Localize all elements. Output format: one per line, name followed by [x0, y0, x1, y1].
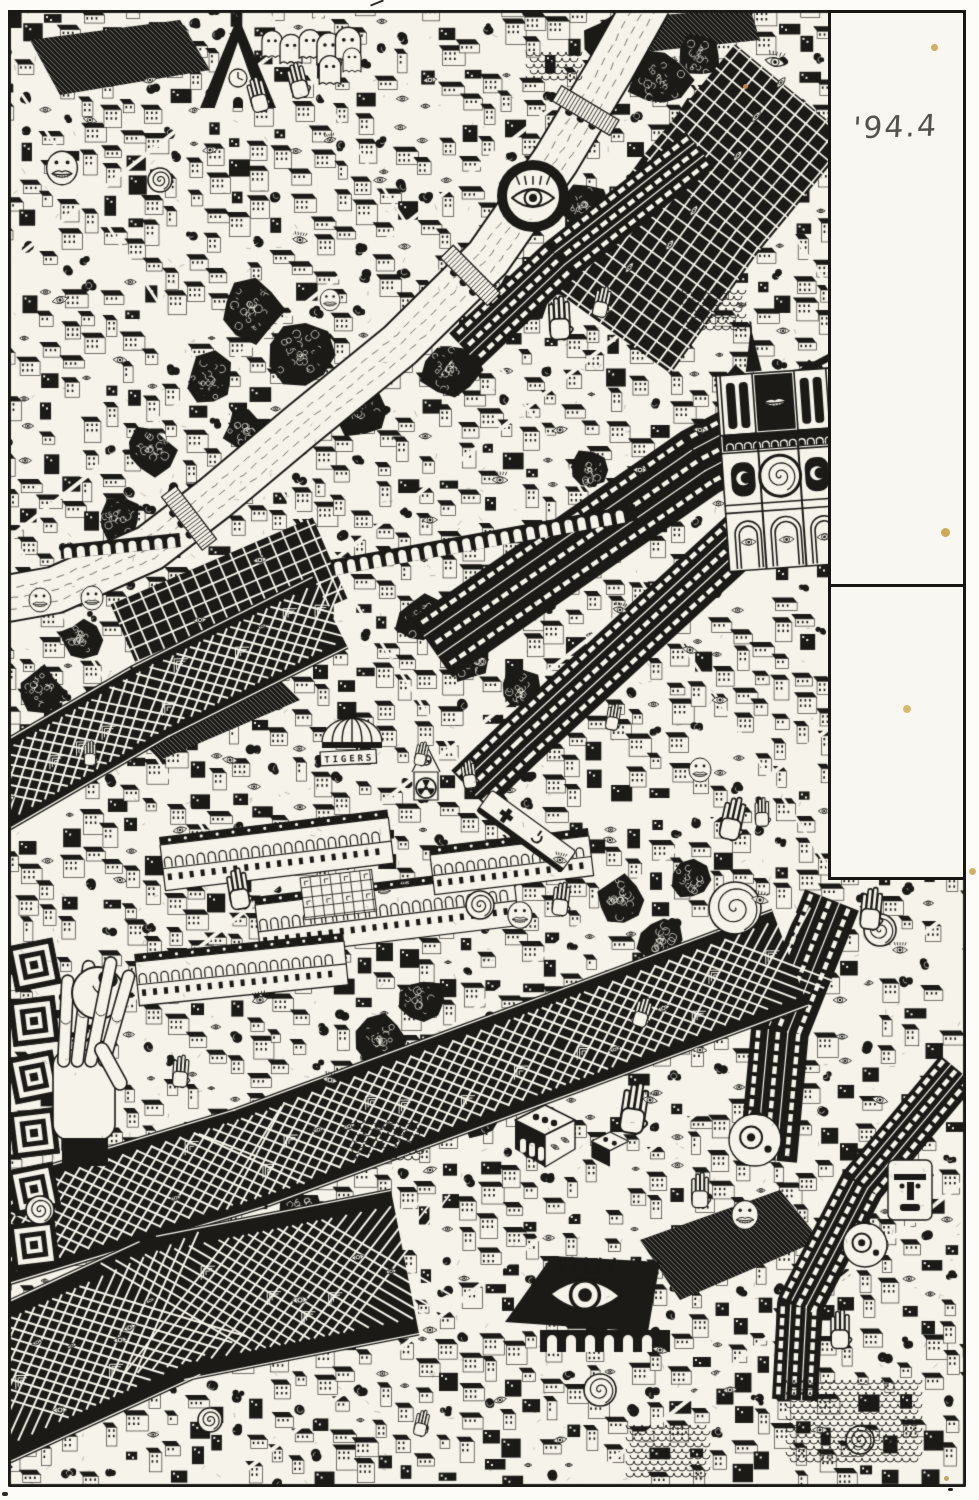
page-number-handwritten: '94.4 — [852, 111, 939, 144]
stray-ink-mark — [948, 1488, 953, 1491]
paper-stain — [941, 528, 950, 537]
stray-ink-mark — [370, 0, 384, 7]
paper-stain — [903, 705, 911, 713]
paper-stain — [931, 44, 938, 51]
ink-cityscape-drawing — [8, 10, 966, 1487]
paper-stain — [944, 1476, 949, 1481]
margin-panel-bottom — [828, 585, 966, 880]
stray-ink-mark — [2, 1492, 8, 1496]
paper-stain — [743, 84, 748, 89]
paper-stain — [969, 868, 976, 875]
margin-panel-top: '94.4 — [828, 10, 966, 587]
scanned-artwork-page: '94.4 — [0, 0, 979, 1500]
